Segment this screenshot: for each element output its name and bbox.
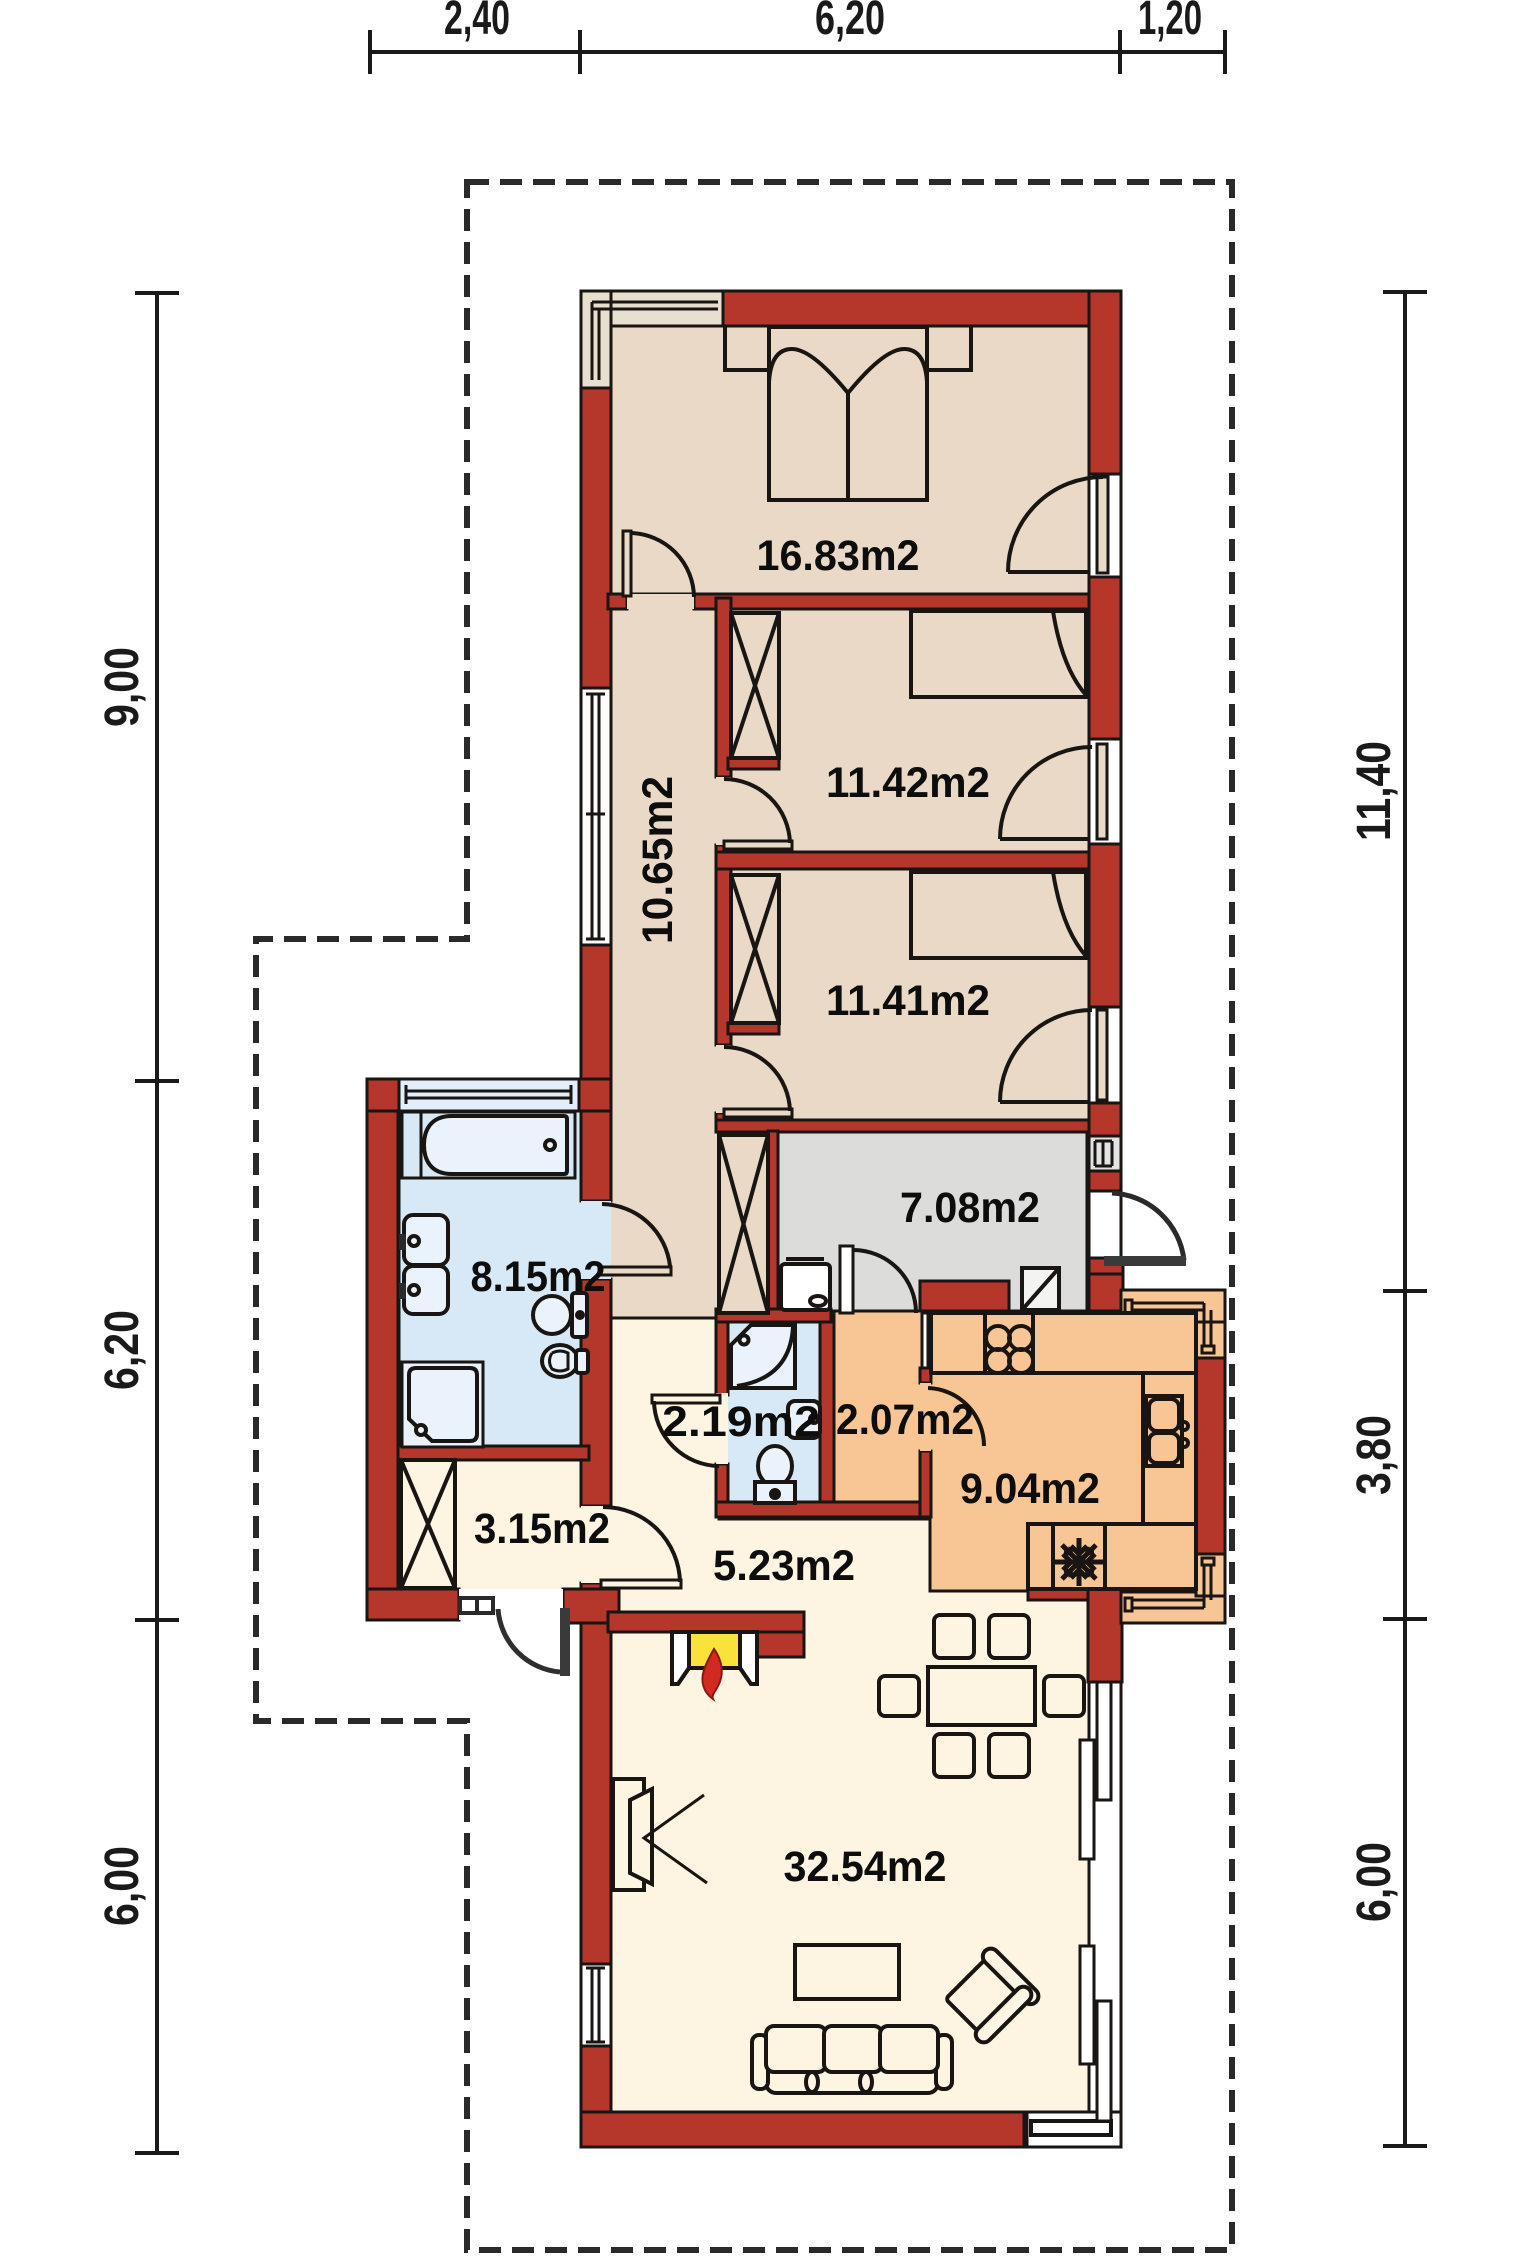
svg-text:2.07m2: 2.07m2 bbox=[836, 1396, 974, 1444]
svg-text:1,20: 1,20 bbox=[1138, 0, 1202, 45]
svg-text:10.65m2: 10.65m2 bbox=[634, 776, 682, 944]
svg-text:11.41m2: 11.41m2 bbox=[826, 977, 990, 1025]
svg-text:11,40: 11,40 bbox=[1348, 741, 1401, 841]
svg-text:11.42m2: 11.42m2 bbox=[826, 759, 990, 807]
svg-text:32.54m2: 32.54m2 bbox=[784, 1843, 947, 1891]
svg-text:6,00: 6,00 bbox=[96, 1846, 149, 1926]
svg-text:9.04m2: 9.04m2 bbox=[960, 1465, 1100, 1513]
svg-text:3.15m2: 3.15m2 bbox=[474, 1505, 610, 1553]
svg-text:9,00: 9,00 bbox=[96, 647, 149, 727]
svg-text:16.83m2: 16.83m2 bbox=[757, 532, 920, 580]
svg-text:3,80: 3,80 bbox=[1348, 1415, 1401, 1495]
svg-text:6,00: 6,00 bbox=[1348, 1842, 1401, 1922]
svg-text:8.15m2: 8.15m2 bbox=[471, 1253, 606, 1301]
svg-text:6,20: 6,20 bbox=[815, 0, 885, 45]
svg-text:5.23m2: 5.23m2 bbox=[713, 1542, 855, 1590]
svg-text:2.19m2: 2.19m2 bbox=[662, 1398, 820, 1446]
svg-text:6,20: 6,20 bbox=[96, 1310, 149, 1390]
svg-text:2,40: 2,40 bbox=[444, 0, 510, 45]
svg-text:7.08m2: 7.08m2 bbox=[900, 1184, 1040, 1232]
